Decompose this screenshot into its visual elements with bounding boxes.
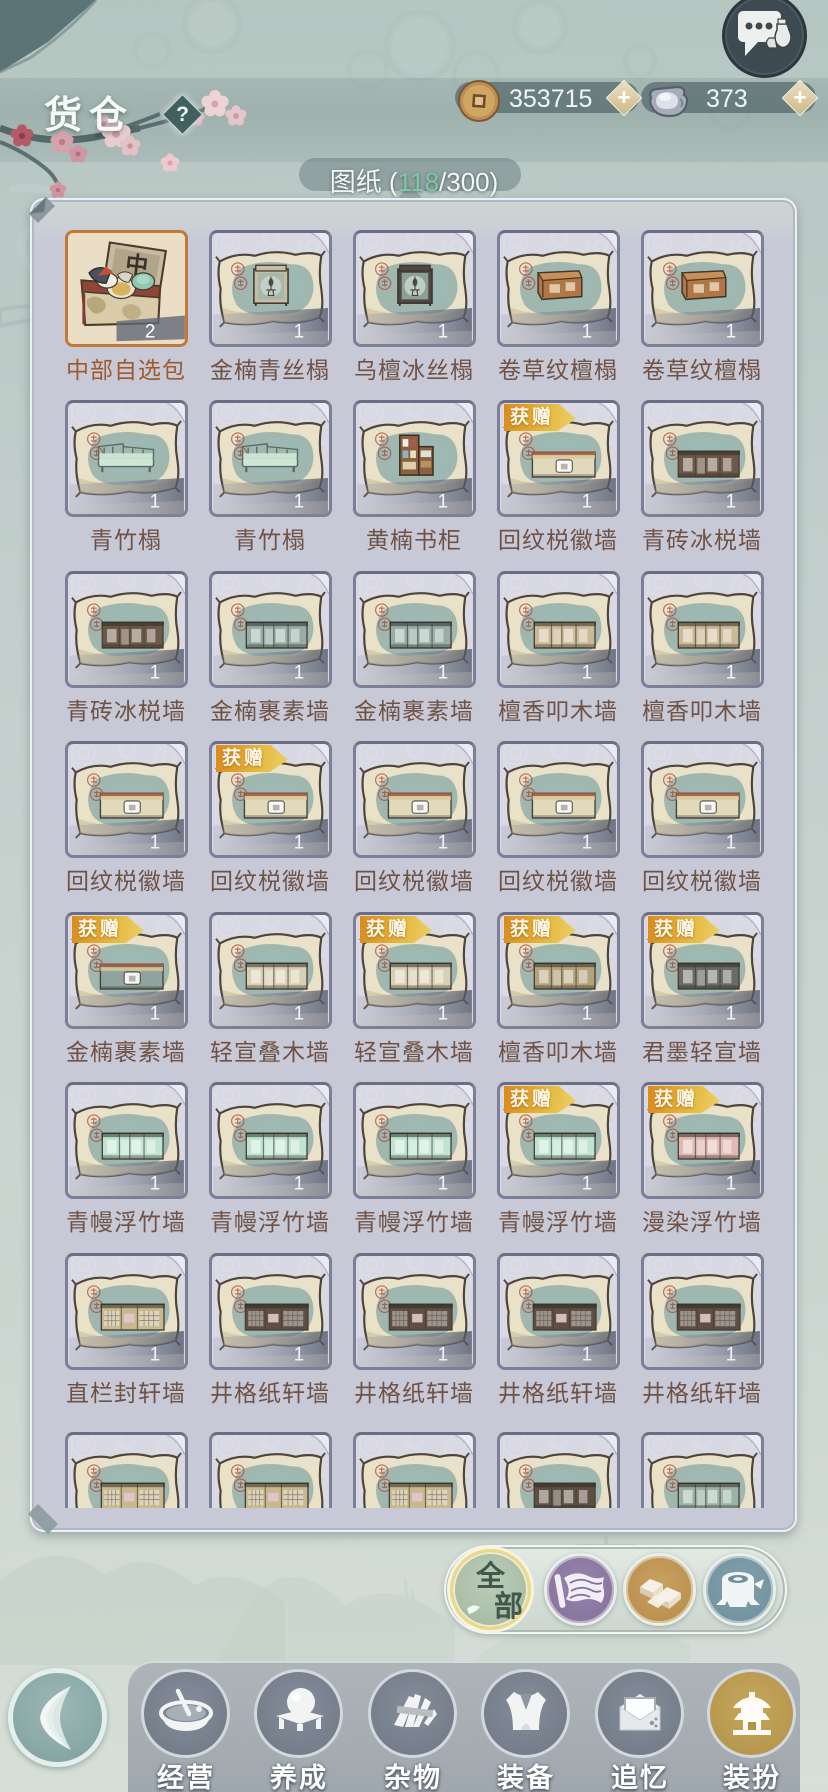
svg-text:1: 1 [438, 662, 449, 683]
svg-text:1: 1 [582, 832, 593, 853]
svg-text:1: 1 [438, 321, 449, 342]
svg-text:1: 1 [582, 1003, 593, 1024]
svg-text:1: 1 [294, 662, 305, 683]
svg-text:1: 1 [438, 1003, 449, 1024]
svg-text:1: 1 [582, 491, 593, 512]
svg-text:1: 1 [582, 1344, 593, 1365]
svg-text:1: 1 [150, 1173, 161, 1194]
svg-text:1: 1 [294, 1003, 305, 1024]
svg-text:1: 1 [582, 1173, 593, 1194]
svg-text:1: 1 [726, 1344, 737, 1365]
svg-text:1: 1 [438, 832, 449, 853]
svg-text:1: 1 [294, 1173, 305, 1194]
svg-text:1: 1 [150, 662, 161, 683]
svg-text:2: 2 [145, 321, 156, 342]
svg-text:部: 部 [494, 1589, 523, 1623]
svg-text:1: 1 [150, 491, 161, 512]
svg-text:1: 1 [294, 321, 305, 342]
svg-text:1: 1 [294, 1344, 305, 1365]
svg-text:1: 1 [726, 1003, 737, 1024]
svg-text:1: 1 [294, 832, 305, 853]
svg-text:1: 1 [726, 832, 737, 853]
svg-text:1: 1 [438, 1173, 449, 1194]
svg-text:1: 1 [150, 1344, 161, 1365]
svg-text:1: 1 [726, 1173, 737, 1194]
svg-text:1: 1 [582, 321, 593, 342]
svg-text:1: 1 [294, 491, 305, 512]
svg-text:1: 1 [150, 1003, 161, 1024]
svg-text:1: 1 [438, 1344, 449, 1365]
svg-text:1: 1 [726, 321, 737, 342]
svg-text:1: 1 [726, 662, 737, 683]
svg-text:全: 全 [475, 1559, 506, 1593]
svg-text:1: 1 [150, 832, 161, 853]
svg-text:1: 1 [582, 662, 593, 683]
svg-text:1: 1 [726, 491, 737, 512]
svg-text:1: 1 [438, 491, 449, 512]
